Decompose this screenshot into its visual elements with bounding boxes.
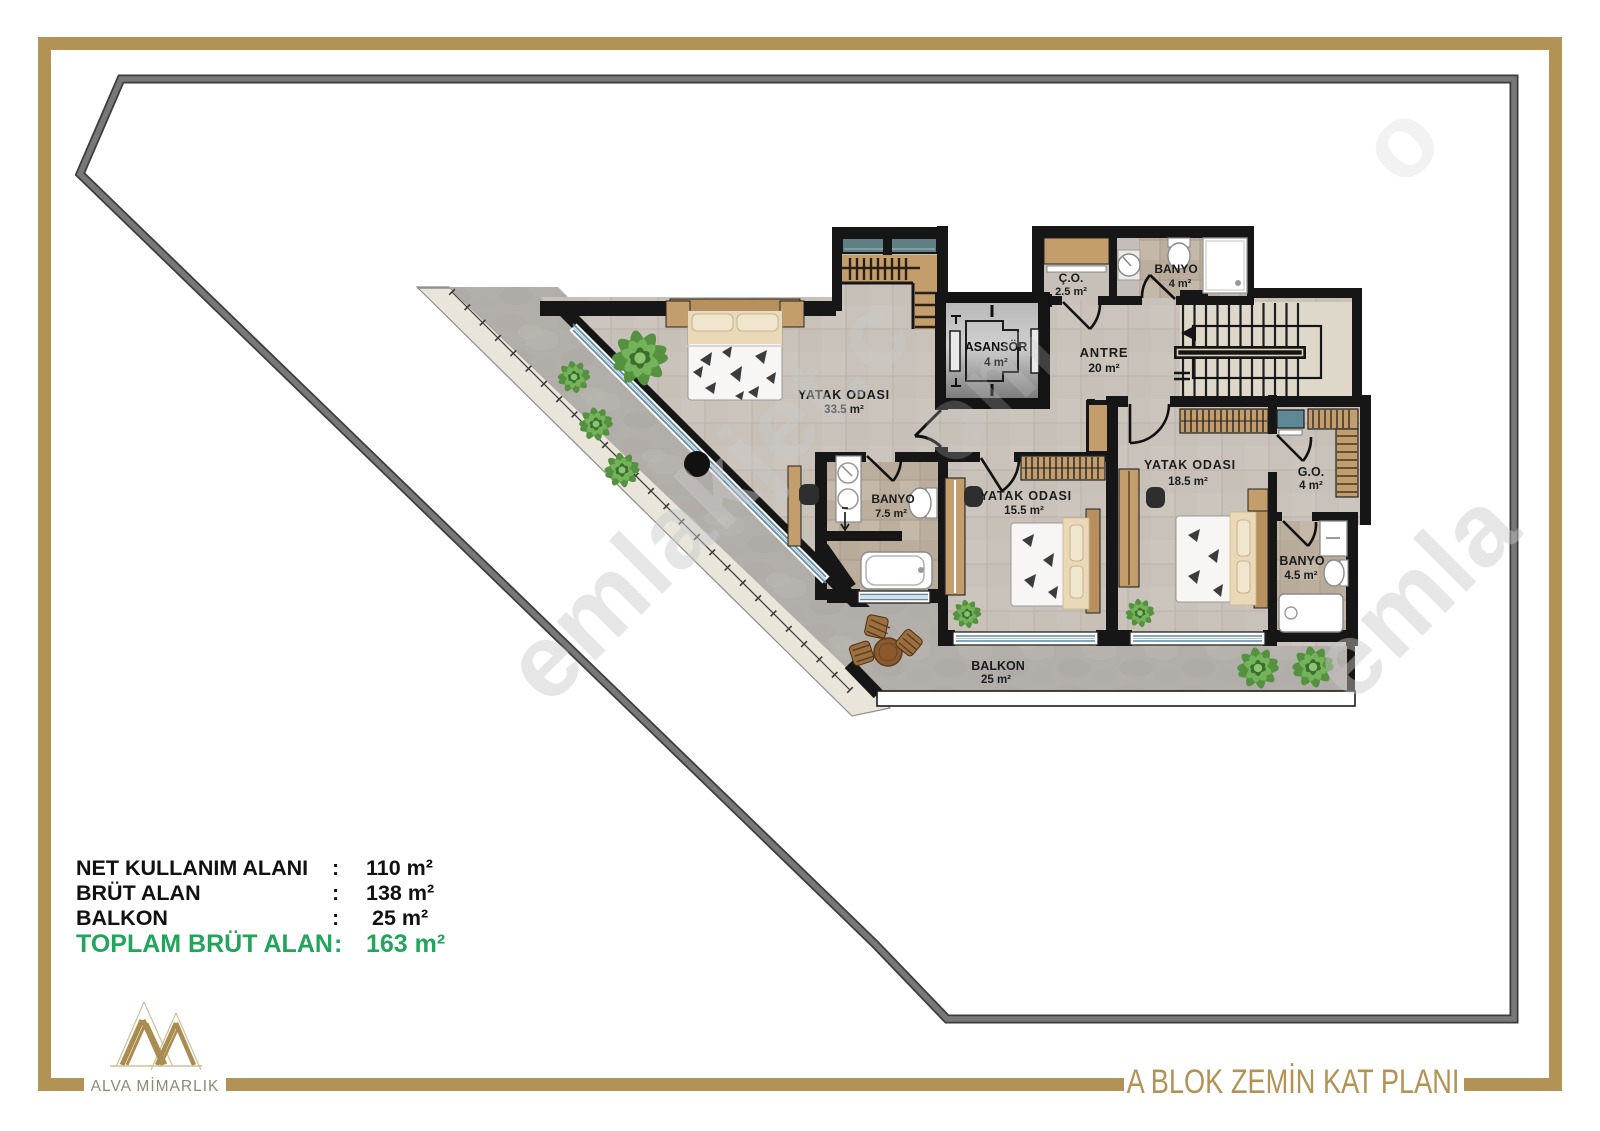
svg-text:7.5 m²: 7.5 m² <box>875 508 907 520</box>
svg-text:18.5 m²: 18.5 m² <box>1168 476 1208 488</box>
svg-text:BRÜT ALAN: BRÜT ALAN <box>76 880 201 905</box>
svg-text:25 m²: 25 m² <box>981 674 1011 686</box>
svg-text:20 m²: 20 m² <box>1088 361 1119 375</box>
svg-text:BANYO: BANYO <box>1154 262 1197 276</box>
svg-text:2.5 m²: 2.5 m² <box>1055 286 1087 298</box>
svg-text:138 m²: 138 m² <box>366 881 434 905</box>
svg-text:4 m²: 4 m² <box>1299 480 1323 492</box>
svg-text:NET KULLANIM ALANI: NET KULLANIM ALANI <box>76 856 308 880</box>
svg-text:G.O.: G.O. <box>1298 465 1324 479</box>
svg-text:TOPLAM BRÜT ALAN: TOPLAM BRÜT ALAN <box>76 929 333 958</box>
svg-text:BALKON: BALKON <box>971 659 1024 673</box>
svg-text:15.5 m²: 15.5 m² <box>1004 505 1044 517</box>
svg-text:BALKON: BALKON <box>76 906 168 930</box>
svg-text:163 m²: 163 m² <box>366 930 445 958</box>
svg-text:A BLOK ZEMİN KAT PLANI: A BLOK ZEMİN KAT PLANI <box>1127 1062 1460 1101</box>
svg-text::: : <box>332 856 339 880</box>
svg-text::: : <box>334 930 342 958</box>
svg-text:Ç.O.: Ç.O. <box>1059 271 1084 285</box>
svg-text:ANTRE: ANTRE <box>1080 345 1129 360</box>
svg-text:25 m²: 25 m² <box>372 906 428 930</box>
svg-text:YATAK ODASI: YATAK ODASI <box>980 489 1072 503</box>
svg-text:BANYO: BANYO <box>871 492 914 506</box>
svg-text:YATAK ODASI: YATAK ODASI <box>1144 458 1236 472</box>
svg-text:110 m²: 110 m² <box>366 856 433 880</box>
svg-text::: : <box>332 906 339 930</box>
svg-text:BANYO: BANYO <box>1279 554 1324 568</box>
svg-text::: : <box>332 881 339 905</box>
svg-text:4 m²: 4 m² <box>1169 278 1192 290</box>
svg-text:4.5 m²: 4.5 m² <box>1284 570 1317 582</box>
svg-text:ALVA MİMARLIK: ALVA MİMARLIK <box>91 1077 220 1095</box>
